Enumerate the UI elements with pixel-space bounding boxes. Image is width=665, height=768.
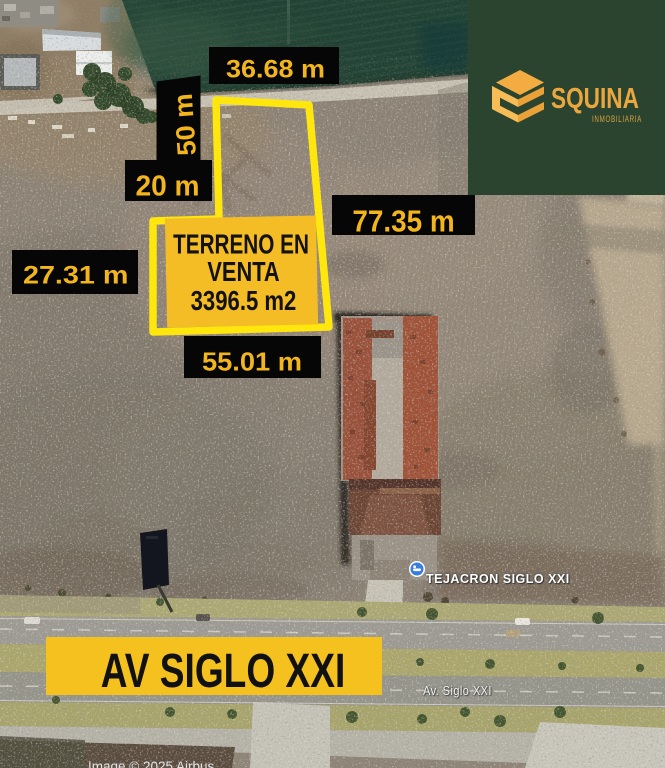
svg-text:VENTA: VENTA <box>207 256 279 287</box>
svg-text:TEJACRON SIGLO XXI: TEJACRON SIGLO XXI <box>426 572 570 586</box>
svg-text:77.35 m: 77.35 m <box>352 204 454 239</box>
svg-text:Av. Siglo XXI: Av. Siglo XXI <box>423 684 492 698</box>
svg-text:27.31 m: 27.31 m <box>23 261 129 289</box>
svg-text:AV SIGLO XXI: AV SIGLO XXI <box>101 644 346 698</box>
svg-text:50 m: 50 m <box>168 93 202 157</box>
svg-text:55.01 m: 55.01 m <box>202 347 302 376</box>
svg-text:36.68 m: 36.68 m <box>226 54 325 83</box>
svg-text:INMOBILIARIA: INMOBILIARIA <box>592 114 642 125</box>
svg-text:3396.5 m2: 3396.5 m2 <box>191 286 297 317</box>
svg-text:SQUINA: SQUINA <box>551 81 639 114</box>
svg-text:20 m: 20 m <box>135 170 199 202</box>
svg-text:Image © 2025 Airbus: Image © 2025 Airbus <box>88 759 215 768</box>
